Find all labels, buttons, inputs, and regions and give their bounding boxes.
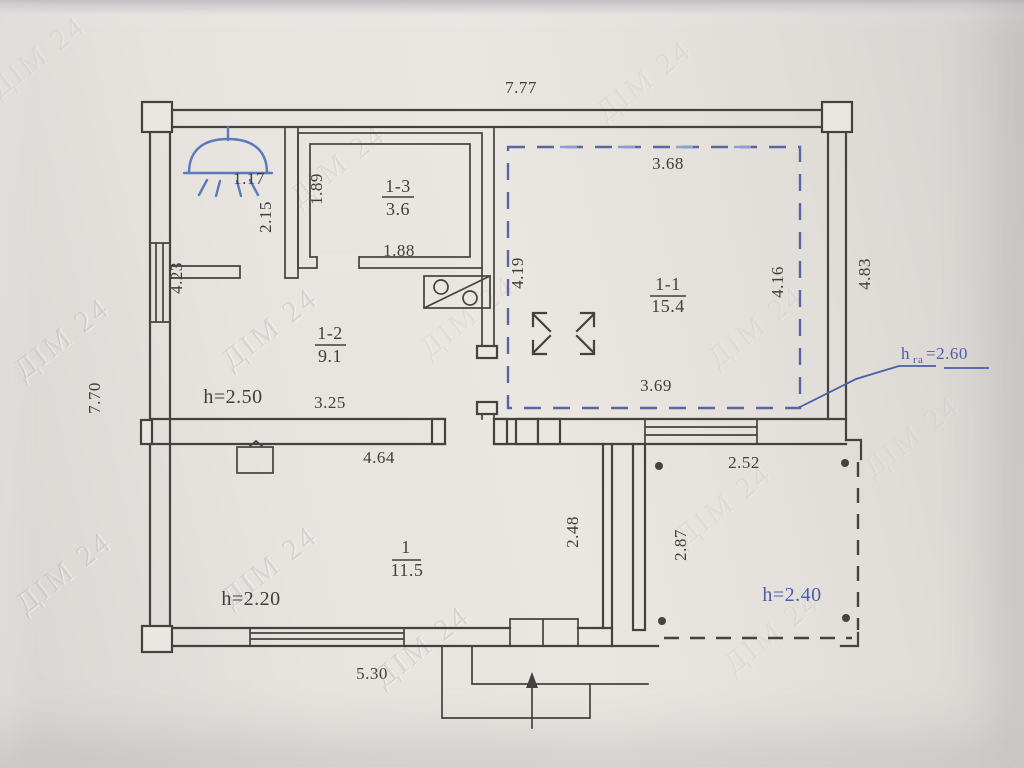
dim-room-1-1-right: 4.16: [768, 266, 787, 298]
dim-shower-width: 1.17: [233, 169, 265, 188]
attic-note-sub: га: [913, 354, 923, 366]
dim-room-1-1-bottom: 3.69: [640, 376, 672, 395]
fraction-lines: [315, 197, 686, 560]
dim-room-1-1-left: 4.19: [508, 257, 527, 289]
room-1-number: 1: [401, 537, 411, 557]
stove-icon: [424, 276, 490, 308]
room-1-ceiling-height: h=2.20: [221, 588, 280, 610]
dim-left-window: 4.23: [167, 262, 186, 294]
terrace-ceiling-height: h=2.40: [762, 584, 821, 606]
chimney-flue-icon: [237, 441, 273, 473]
room-1-2-area: 9.1: [318, 346, 342, 366]
dim-room-1-top: 4.64: [363, 448, 395, 467]
furnace-arrows-icon: [533, 313, 594, 354]
room-1-1-dashed-boundary: [508, 147, 800, 408]
dim-bottom-width: 5.30: [356, 664, 388, 683]
porch-steps: [442, 646, 648, 718]
dim-room-1-3-bottom: 1.88: [383, 241, 415, 260]
terrace-dashed-boundary: [664, 462, 858, 638]
dim-top-width: 7.77: [505, 78, 537, 97]
room-1-3-area: 3.6: [386, 199, 410, 219]
dim-shower-height: 2.15: [256, 201, 275, 233]
dim-terrace-top: 2.52: [728, 453, 760, 472]
entrance-arrow-icon: [526, 672, 538, 728]
scanned-floor-plan-page: ДІМ 24 ДІМ 24 ДІМ 24 ДІМ 24 ДІМ 24 ДІМ 2…: [0, 0, 1024, 768]
floor-plan-drawing: 7.77 7.70 4.83 5.30 1.17 2.15 4.23 1-3 3…: [0, 0, 1024, 768]
dim-room-1-3-side: 1.89: [307, 173, 326, 205]
room-1-1-area: 15.4: [651, 296, 685, 316]
dim-terrace-left: 2.87: [671, 529, 690, 561]
room-1-area: 11.5: [391, 560, 424, 580]
dim-room-1-1-top: 3.68: [652, 154, 684, 173]
dim-left-height: 7.70: [85, 382, 104, 414]
attic-note-value: =2.60: [926, 344, 968, 363]
dim-right-height: 4.83: [855, 258, 874, 290]
room-1-2-number: 1-2: [317, 323, 343, 343]
dim-room-1-right: 2.48: [563, 516, 582, 548]
room-1-1-number: 1-1: [655, 274, 681, 294]
attic-note-h: h: [901, 344, 910, 363]
dim-room-1-2-bottom: 3.25: [314, 393, 346, 412]
room-1-3-number: 1-3: [385, 176, 411, 196]
room-1-2-ceiling-height: h=2.50: [203, 386, 262, 408]
